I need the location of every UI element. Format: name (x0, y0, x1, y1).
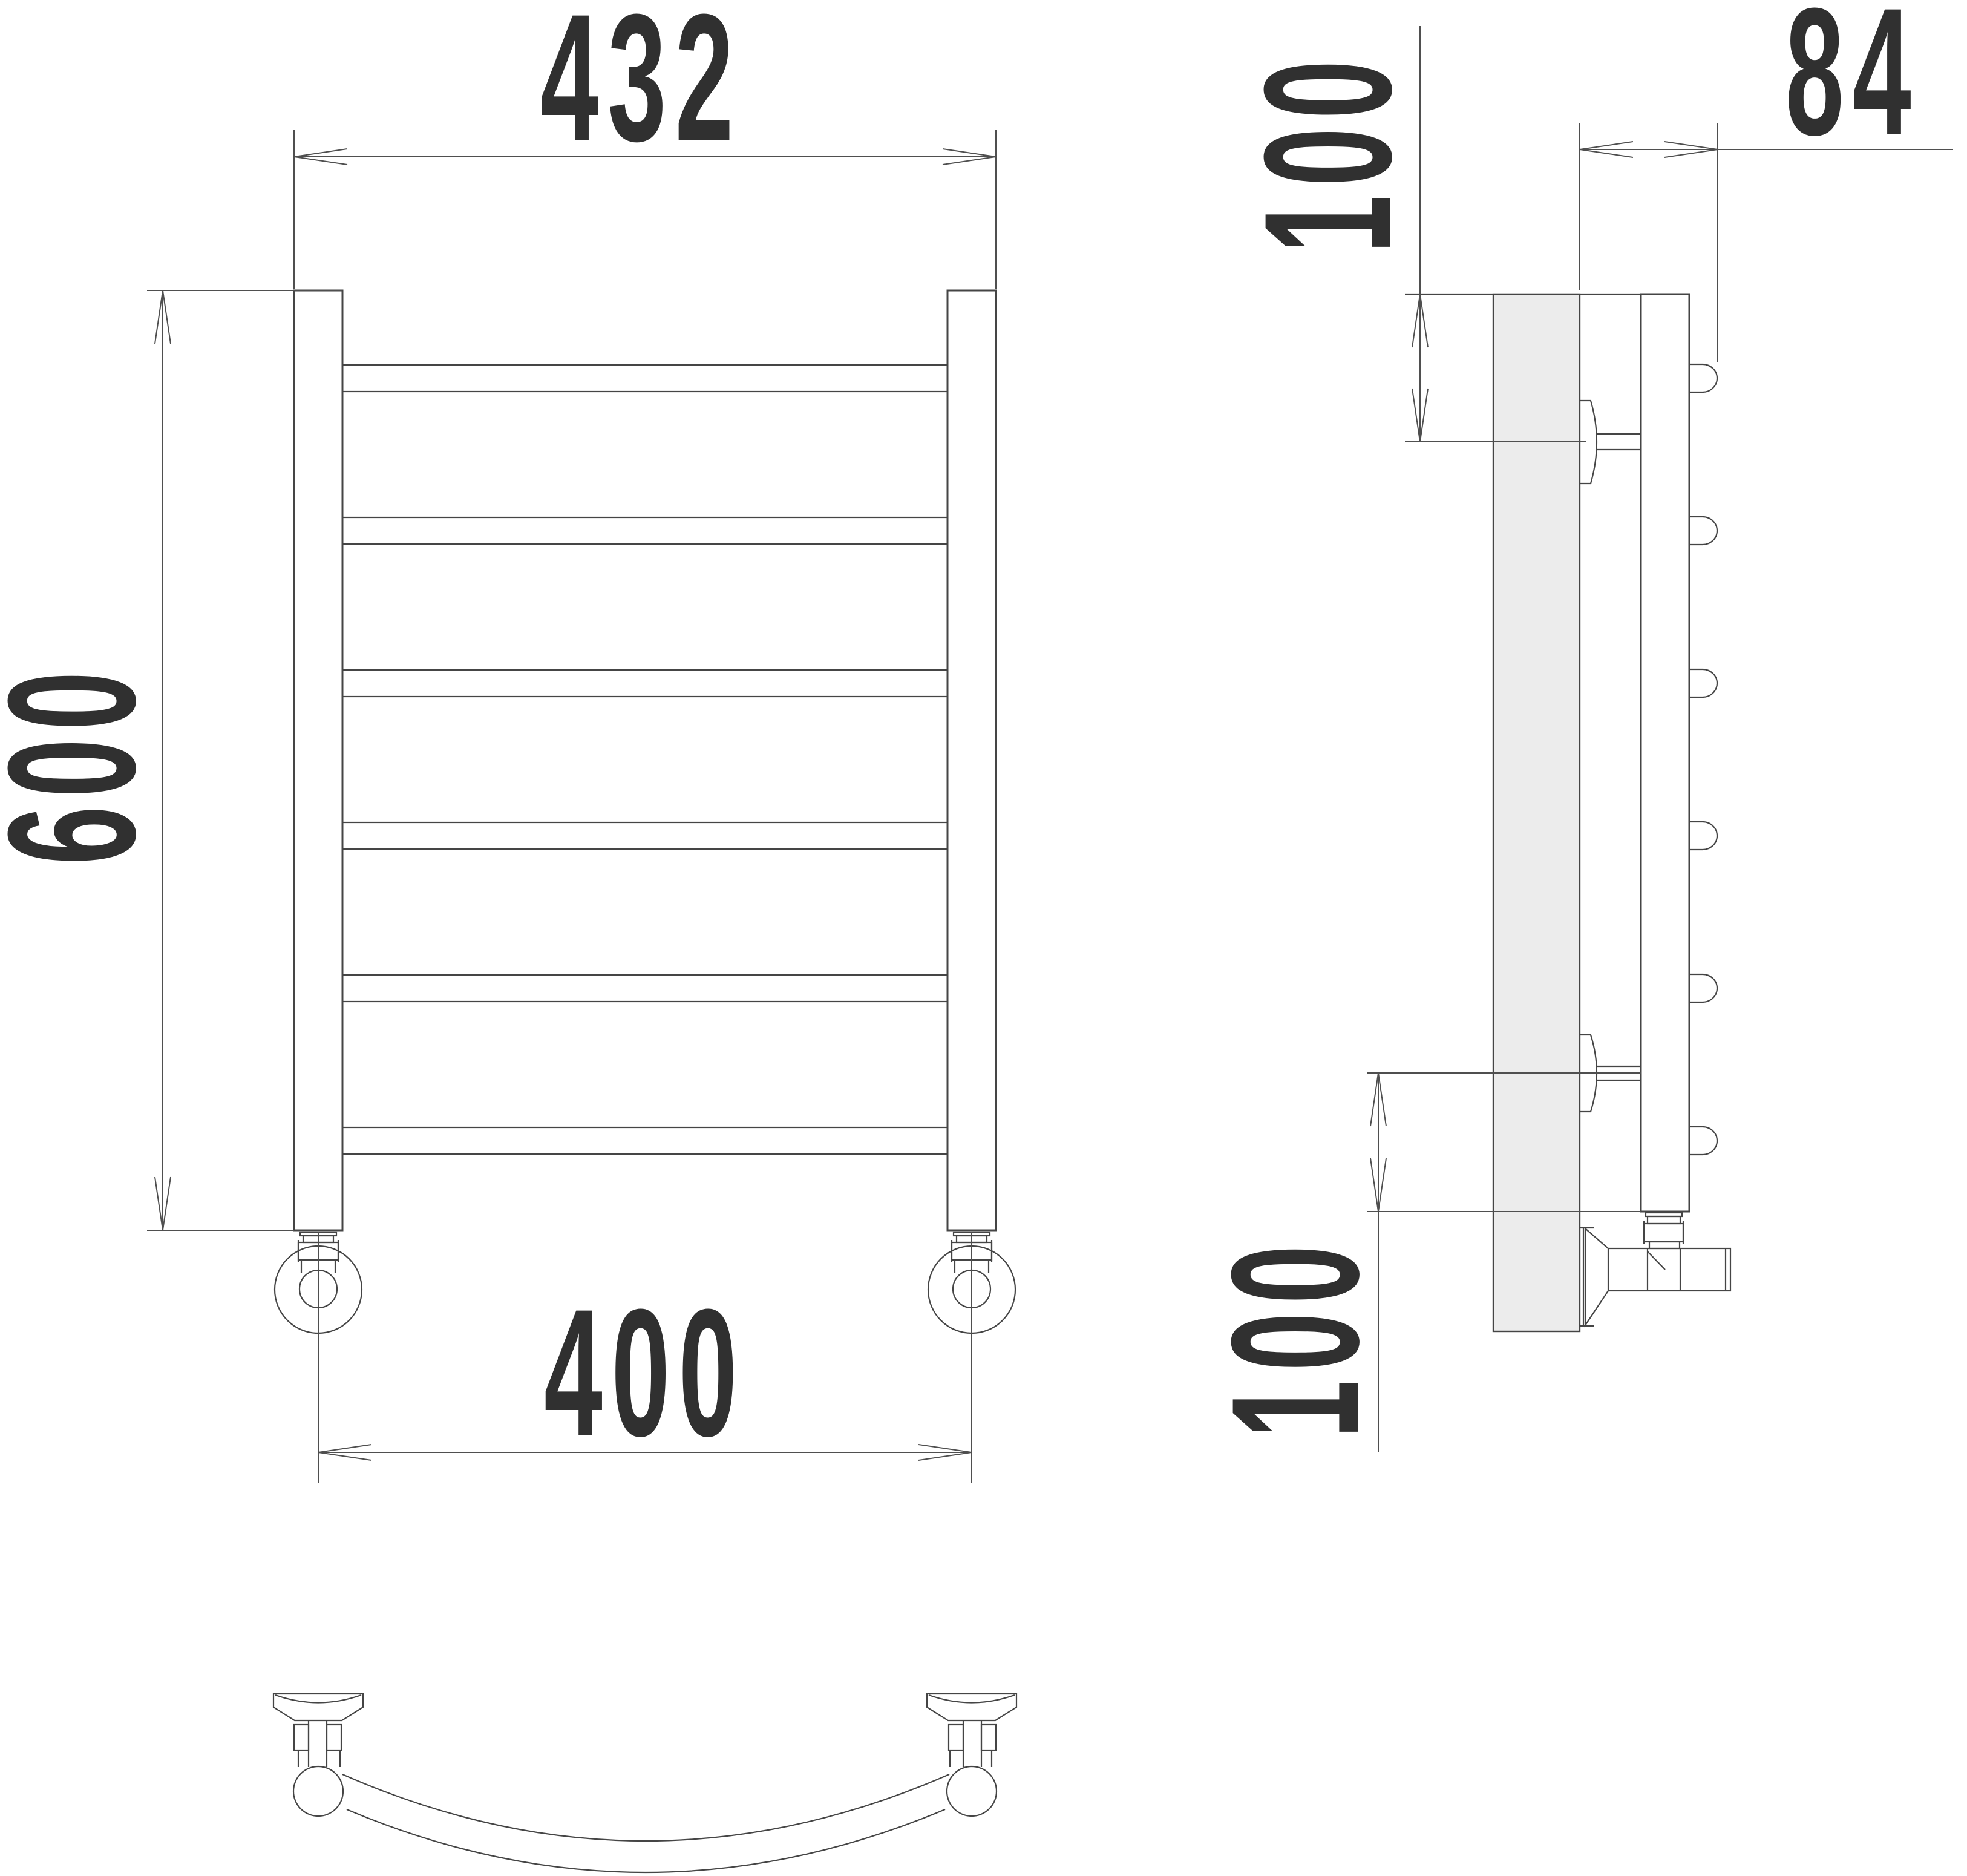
dim-spacing-400: 400 (318, 1232, 972, 1483)
post-end-circle (947, 1766, 997, 1816)
bracket-plate-arc (1591, 401, 1597, 484)
clamp-sleeve (949, 1725, 963, 1750)
valve-neck (1649, 1242, 1680, 1248)
collar (1648, 1216, 1680, 1224)
rungs-front (342, 365, 947, 1154)
rung-tube (342, 365, 947, 392)
bottom-view (273, 1694, 1016, 1872)
side-post (1641, 294, 1689, 1212)
technical-drawing-canvas: 432 600 400 100 84 (0, 0, 1967, 1876)
curved-rung-outline-near (342, 1774, 949, 1841)
dim-label-400: 400 (544, 1271, 746, 1474)
front-view (275, 290, 1015, 1333)
dim-label-600: 600 (0, 663, 173, 865)
rung-tube (342, 822, 947, 849)
rung-end (1689, 1127, 1717, 1155)
upper-bracket (1580, 401, 1641, 484)
rung-tube (342, 1127, 947, 1154)
bottom-left-bracket (273, 1694, 363, 1816)
wall-plate (273, 1694, 363, 1720)
right-post (947, 290, 996, 1230)
dim-height-600: 600 (0, 290, 342, 1230)
bottom-right-bracket (927, 1694, 1016, 1816)
outlet-pipe (1608, 1248, 1730, 1291)
rung-tube (342, 670, 947, 697)
clamp-sleeve (327, 1725, 341, 1750)
rung-end (1689, 974, 1717, 1002)
union-nut (1644, 1224, 1683, 1242)
rung-end (1689, 669, 1717, 697)
rung-end (1689, 822, 1717, 850)
dim-label-84: 84 (1785, 0, 1920, 173)
rung-tube (342, 517, 947, 544)
side-valve-assembly (1580, 1213, 1730, 1326)
rung-ends-side (1689, 364, 1717, 1155)
clamp-sleeve (981, 1725, 996, 1750)
post-end-circle (293, 1766, 343, 1816)
wall-plate (927, 1694, 1016, 1720)
side-view (1405, 294, 1730, 1331)
rung-end (1689, 517, 1717, 545)
drawing-page: 432 600 400 100 84 (0, 0, 1967, 1876)
escutcheon-cone (1585, 1228, 1608, 1325)
wall-section (1493, 294, 1580, 1331)
dim-depth-84: 84 (1580, 0, 1953, 362)
rung-tube (342, 975, 947, 1002)
dim-label-100-bottom: 100 (1193, 1236, 1396, 1438)
clamp-sleeve (294, 1725, 309, 1750)
dim-width-432: 432 (294, 0, 996, 289)
dim-label-100-top: 100 (1226, 51, 1429, 254)
valve-handle-line (1648, 1251, 1665, 1270)
left-post (294, 290, 342, 1230)
dim-label-432: 432 (540, 0, 742, 179)
rung-end (1689, 364, 1717, 392)
